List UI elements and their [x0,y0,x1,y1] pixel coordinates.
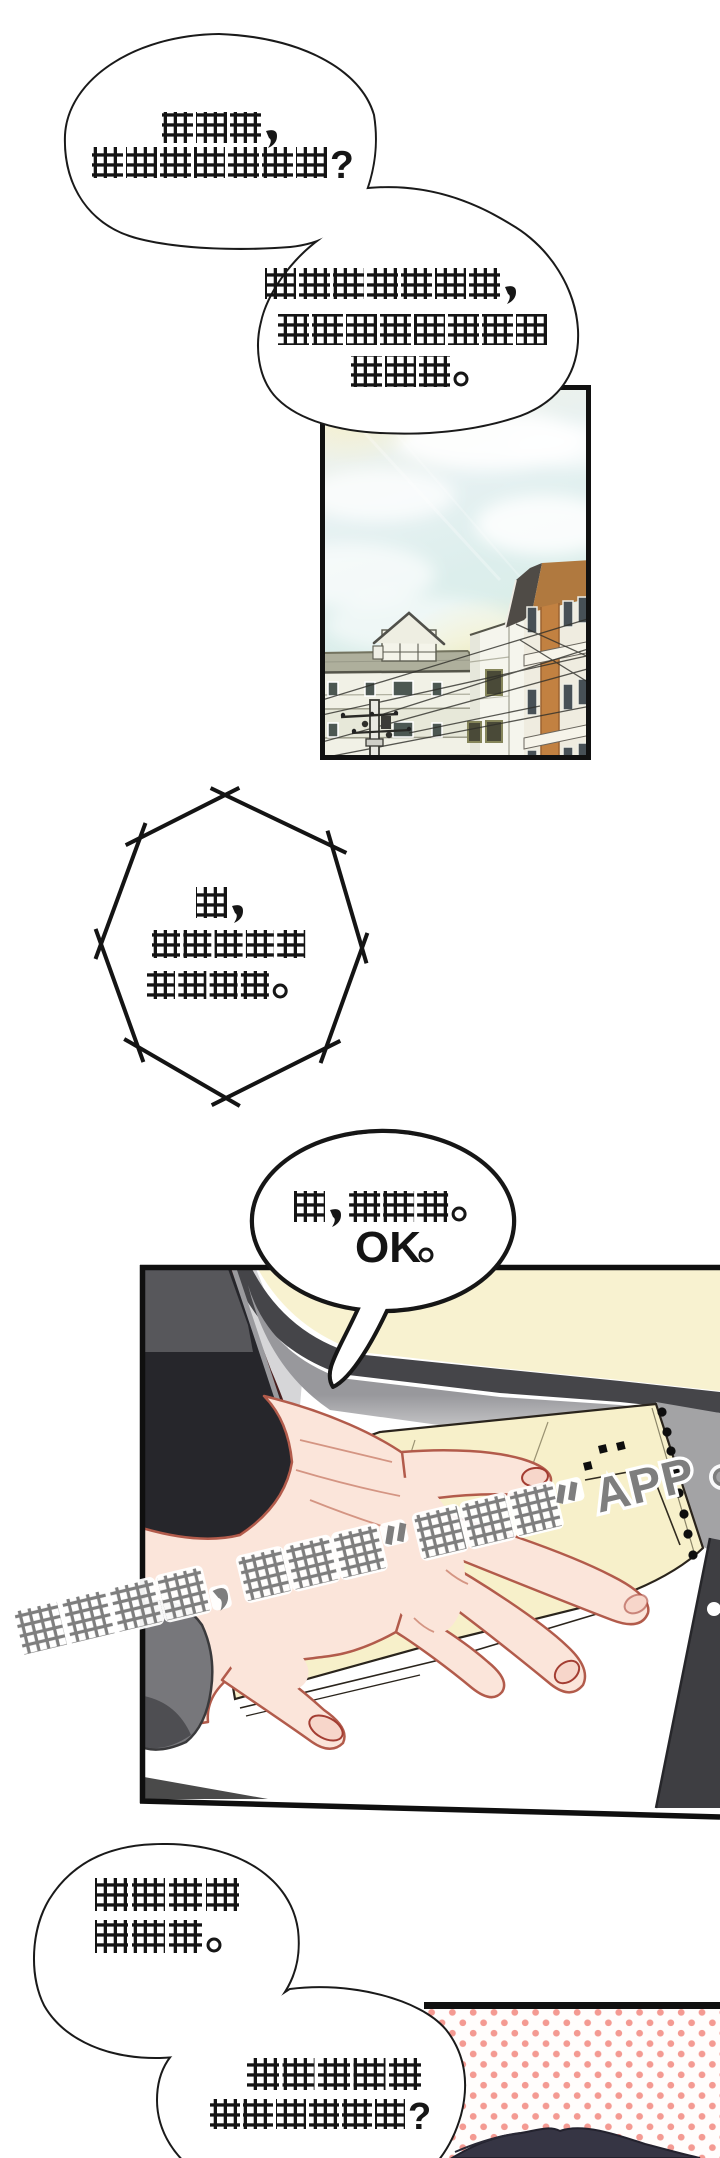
svg-text:?: ? [330,144,354,187]
svg-text:?: ? [408,2096,431,2138]
svg-text:OK: OK [355,1223,421,1272]
